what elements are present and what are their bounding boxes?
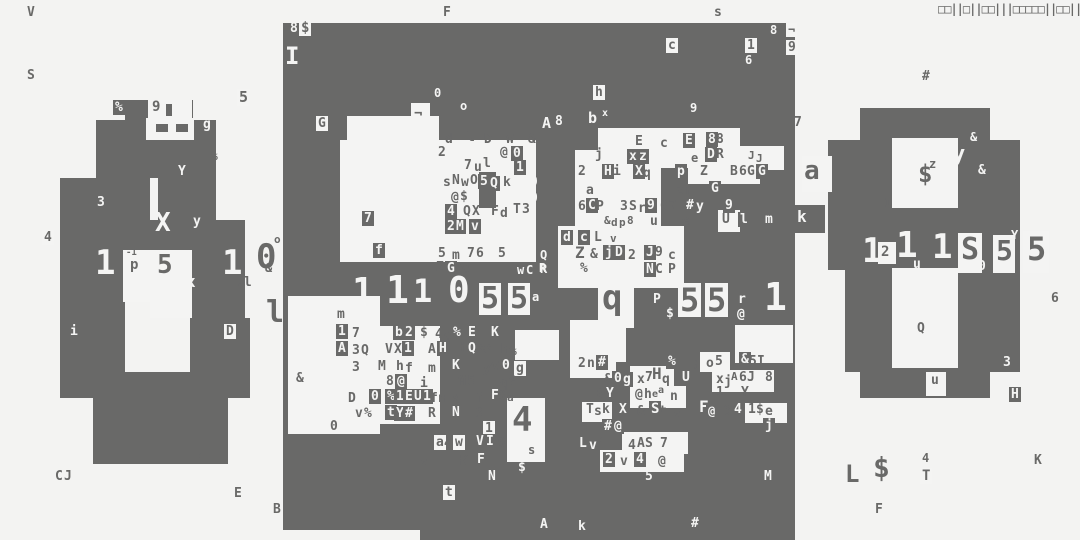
glyph-cell: V — [27, 6, 35, 19]
glyph-cell: $ — [299, 20, 311, 36]
glyph-cell: h — [644, 388, 652, 401]
glyph-cell: F — [875, 503, 883, 516]
glyph-cell: S — [961, 235, 979, 265]
glyph-cell: 7 — [669, 200, 677, 213]
glyph-cell: n — [438, 392, 446, 405]
glyph-cell: e — [682, 215, 690, 228]
glyph-cell: # — [691, 517, 699, 530]
glyph-cell: 8 — [386, 375, 394, 388]
glyph-cell: A — [731, 371, 738, 382]
glyph-cell: % — [509, 345, 517, 358]
glyph-cell: G — [316, 116, 328, 131]
glyph-cell: 6 — [739, 371, 747, 384]
glyph-cell: I — [285, 44, 299, 68]
glyph-cell: .l — [236, 276, 252, 289]
glyph-cell: Y — [1011, 229, 1018, 241]
glyph-cell: 1 — [336, 324, 348, 339]
glyph-cell: k — [602, 403, 610, 416]
glyph-cell: a — [586, 184, 594, 197]
glyph-cell: @ — [706, 404, 717, 418]
glyph-cell: z — [929, 158, 936, 170]
glyph-cell: M — [378, 360, 386, 373]
glyph-cell: 8 — [627, 215, 634, 226]
block-rect — [125, 372, 191, 398]
glyph-cell: w — [461, 176, 469, 189]
glyph-cell: i — [68, 324, 80, 339]
glyph-cell: % — [666, 354, 678, 369]
glyph-cell: 9 — [723, 198, 735, 213]
glyph-cell: E — [683, 133, 695, 148]
glyph-cell: P — [596, 200, 604, 213]
glyph-cell: e — [765, 405, 773, 418]
glyph-cell: R — [716, 148, 724, 161]
glyph-cell: G — [747, 165, 755, 178]
glyph-cell: ¬ — [786, 23, 797, 37]
glyph-cell: K — [1034, 454, 1042, 467]
glyph-cell: Q — [361, 344, 369, 357]
glyph-cell: m — [428, 362, 436, 375]
glyph-cell: 1 — [402, 341, 414, 356]
glyph-cell: 5 — [1027, 233, 1046, 265]
glyph-cell: 3 — [352, 344, 360, 357]
glyph-cell: R — [539, 262, 546, 274]
glyph-cell: 6 — [476, 247, 484, 260]
glyph-cell: $ — [756, 403, 764, 416]
glyph-cell: A — [540, 518, 548, 531]
glyph-cell: 6 — [745, 54, 752, 66]
block-rect — [190, 318, 250, 398]
glyph-cell: z — [637, 149, 649, 164]
glyph-cell: 6 — [739, 165, 747, 178]
glyph-cell: h — [396, 360, 404, 373]
glyph-cell: z — [242, 388, 250, 401]
glyph-cell: 5 — [705, 283, 728, 317]
glyph-cell: Z — [436, 261, 444, 274]
glyph-cell: % — [210, 150, 218, 163]
glyph-cell: 1 — [514, 160, 526, 175]
glyph-cell: Q — [538, 248, 549, 262]
glyph-cell: ¬ — [414, 107, 422, 121]
block-rect — [176, 124, 188, 132]
glyph-cell: 5 — [508, 283, 530, 315]
glyph-cell: @ — [500, 146, 508, 159]
glyph-cell: S — [629, 200, 637, 213]
glyph-cell: M — [458, 375, 466, 388]
glyph-cell: A — [540, 115, 553, 132]
glyph-cell: s — [452, 392, 460, 405]
glyph-cell: 0 — [369, 389, 381, 404]
glyph-cell: 5 — [580, 422, 588, 435]
glyph-cell: N — [452, 174, 460, 187]
glyph-cell: N — [486, 469, 498, 484]
glyph-cell: # — [922, 70, 930, 83]
glyph-cell: 5 — [157, 252, 173, 278]
glyph-cell: u — [929, 373, 941, 388]
glyph-cell: k — [578, 520, 586, 533]
glyph-cell: J — [747, 371, 755, 384]
glyph-cell: Z — [700, 165, 708, 178]
glyph-cell: 1 — [745, 38, 757, 53]
glyph-cell: 5 — [237, 89, 250, 106]
glyph-cell: 9 — [498, 390, 506, 403]
glyph-cell: 5 — [749, 355, 757, 368]
glyph-cell: d — [445, 133, 453, 146]
glyph-cell: 4 — [435, 328, 443, 341]
glyph-cell: @ — [735, 307, 747, 322]
glyph-cell: h — [593, 85, 605, 100]
glyph-cell: X — [155, 210, 171, 236]
glyph-cell: 3 — [620, 200, 628, 213]
glyph-cell: 4 — [445, 204, 457, 219]
glyph-cell: y — [193, 215, 201, 228]
glyph-cell: 7 — [464, 159, 472, 172]
glyph-cell: m — [763, 212, 775, 227]
glyph-cell: 9 — [498, 437, 506, 450]
glyph-cell: 6 — [1051, 292, 1059, 305]
glyph-cell: l — [467, 131, 475, 144]
glyph-cell: a — [658, 386, 664, 396]
glyph-cell: p — [130, 258, 138, 272]
glyph-cell: A — [637, 437, 645, 450]
glyph-cell: & — [976, 163, 988, 178]
glyph-cell: y — [483, 362, 491, 375]
glyph-cell: -1 — [126, 249, 137, 258]
glyph-cell: & — [970, 131, 977, 143]
glyph-cell: 3 — [1003, 356, 1011, 369]
glyph-cell: 2 — [438, 146, 446, 159]
glyph-cell: T — [586, 403, 594, 416]
glyph-cell: # — [475, 343, 483, 356]
glyph-cell: t — [659, 405, 667, 418]
glyph-cell: j — [595, 148, 603, 161]
glyph-cell: 8 — [290, 22, 298, 35]
glyph-cell: 9 — [645, 198, 657, 213]
glyph-cell: E — [635, 135, 643, 148]
glyph-cell: # — [483, 343, 491, 356]
glyph-cell: $ — [873, 454, 890, 482]
glyph-cell: O — [470, 174, 478, 187]
glyph-cell: 4 — [634, 452, 646, 467]
glyph-cell: 0 — [978, 260, 986, 273]
glyph-cell: I — [484, 434, 496, 449]
glyph-cell: F — [475, 452, 487, 467]
glyph-cell: % — [113, 100, 125, 115]
glyph-cell: l — [266, 298, 284, 328]
glyph-cell: a — [804, 158, 820, 184]
glyph-cell: s — [443, 176, 451, 189]
glyph-cell: 1 — [932, 230, 952, 264]
glyph-cell: Q — [488, 176, 500, 191]
glyph-cell: v — [420, 455, 428, 468]
glyph-cell: 2 — [628, 249, 636, 262]
glyph-cell: S — [645, 437, 653, 450]
glyph-cell: x — [637, 373, 645, 386]
glyph-cell: @ — [658, 455, 666, 468]
glyph-cell: k — [797, 209, 807, 225]
glyph-cell: H — [437, 341, 449, 356]
glyph-cell: & — [604, 215, 611, 226]
glyph-cell: d — [611, 217, 618, 228]
glyph-cell: E — [466, 325, 478, 340]
glyph-cell: i — [613, 165, 621, 178]
glyph-cell: 5 — [438, 247, 446, 260]
glyph-cell: D — [224, 324, 236, 339]
block-rect — [60, 220, 245, 250]
glyph-cell: f — [475, 392, 483, 405]
block-rect — [420, 528, 795, 540]
block-rect — [156, 124, 168, 132]
glyph-cell: 7 — [467, 247, 475, 260]
glyph-cell: r — [736, 292, 748, 307]
glyph-cell: 4 — [512, 403, 532, 437]
glyph-cell: 8 — [765, 371, 773, 384]
glyph-cell: H — [652, 366, 662, 382]
glyph-cell: $ — [666, 307, 674, 320]
glyph-cell: X — [394, 343, 402, 356]
glyph-cell: 8 — [770, 24, 777, 36]
glyph-cell: 5 — [479, 283, 501, 315]
glyph-cell: 7 — [794, 116, 802, 129]
glyph-cell: 1 — [413, 275, 432, 307]
glyph-cell: Y — [538, 333, 549, 351]
glyph-cell: 4 — [628, 439, 636, 452]
glyph-cell: # — [596, 355, 608, 370]
glyph-cell: 2 — [603, 452, 615, 467]
glyph-cell: P — [596, 437, 604, 450]
glyph-cell: G — [756, 164, 768, 179]
glyph-cell: v — [673, 407, 681, 420]
glyph-cell: @ — [395, 374, 407, 389]
glyph-cell: Y — [604, 386, 616, 401]
glyph-cell: M — [454, 219, 466, 234]
glitch-canvas: VSFs#5%9g%Y34Xy1p-15x1.l0o&iDlz&8$I0o¬Gh… — [0, 0, 1080, 540]
glyph-cell: H — [1009, 387, 1021, 402]
glyph-cell: l — [738, 212, 750, 227]
glyph-cell: & — [296, 372, 304, 385]
glyph-cell: & — [528, 133, 536, 146]
glyph-cell: k — [503, 176, 511, 189]
glyph-cell: 3 — [522, 203, 530, 216]
glyph-cell: Y — [178, 165, 186, 178]
glyph-cell: Q — [463, 205, 471, 218]
glyph-cell: U — [680, 370, 692, 385]
glyph-cell: i — [458, 343, 466, 356]
glyph-cell: J — [756, 153, 763, 164]
glyph-cell: $ — [460, 190, 468, 203]
glyph-cell: J — [748, 150, 755, 161]
glyph-cell: x — [186, 274, 196, 290]
glyph-cell: 1 — [748, 403, 756, 416]
glyph-cell: @ — [612, 419, 624, 434]
glyph-cell: K — [489, 325, 501, 340]
glyph-cell: Q — [917, 322, 925, 335]
glyph-cell: b — [588, 111, 597, 126]
block-rect — [892, 268, 958, 368]
glyph-cell: h — [500, 343, 508, 356]
glyph-cell: & — [590, 248, 598, 261]
glyph-cell: v — [610, 233, 617, 244]
glyph-cell: 1 — [716, 386, 724, 399]
glyph-cell: X — [472, 205, 480, 218]
glyph-cell: V — [385, 343, 393, 356]
glyph-cell: n — [587, 357, 595, 370]
glyph-cell: 4 — [444, 437, 452, 450]
glyph-cell: s — [594, 405, 602, 418]
glyph-cell: 5 — [498, 247, 506, 260]
glyph-cell: P — [668, 263, 676, 276]
glyph-cell: & — [637, 405, 645, 418]
glyph-cell: m — [337, 308, 345, 321]
glyph-cell: C — [55, 470, 63, 483]
glyph-cell: % — [578, 261, 590, 276]
glyph-cell: 6 — [660, 200, 668, 213]
glyph-cell: z — [676, 184, 684, 197]
glyph-cell: $ — [420, 326, 428, 339]
glyph-cell: F — [491, 205, 499, 218]
glyph-cell: A — [336, 341, 348, 356]
glyph-cell: g — [203, 118, 211, 131]
glyph-cell: M — [764, 470, 772, 483]
glyph-cell: # — [403, 406, 415, 421]
glyph-cell: n — [670, 390, 678, 403]
glyph-cell: A — [428, 343, 436, 356]
glyph-cell: 3 — [97, 196, 105, 209]
glyph-cell: w — [1003, 264, 1010, 275]
glyph-cell: v — [355, 407, 363, 420]
glyph-cell: w — [453, 435, 465, 450]
glyph-cell: 7 — [362, 211, 374, 226]
glyph-cell: 8 — [723, 405, 731, 418]
glyph-cell: $ — [644, 228, 652, 242]
glyph-cell: K — [460, 455, 468, 468]
glyph-cell: d — [561, 230, 573, 245]
glyph-cell: C — [655, 263, 663, 276]
glyph-cell: 4 — [42, 230, 54, 245]
glyph-cell: 0 — [511, 146, 523, 161]
glyph-cell: U — [722, 213, 730, 226]
glyph-cell: p — [675, 164, 687, 179]
block-rect — [515, 330, 559, 360]
glyph-cell: l — [483, 157, 491, 170]
glyph-cell: 9 — [530, 176, 538, 189]
glyph-cell: y — [952, 144, 965, 166]
glyph-cell: 5 — [645, 470, 653, 483]
glyph-cell: D — [348, 392, 356, 405]
glyph-cell: y — [694, 199, 706, 214]
glyph-cell: 9 — [152, 100, 160, 114]
glyph-cell: & — [604, 373, 612, 386]
glyph-cell: 0 — [530, 192, 538, 205]
glyph-cell: 1 — [352, 274, 374, 310]
glyph-cell: v — [620, 455, 628, 468]
glyph-cell: 7 — [660, 437, 668, 450]
glyph-cell: D — [484, 133, 492, 146]
glyph-cell: d — [500, 207, 508, 220]
glyph-cell: s — [528, 444, 535, 456]
glyph-cell: 1 — [386, 271, 409, 309]
glyph-cell: 7 — [352, 327, 360, 340]
glyph-cell: 2 — [578, 165, 586, 178]
glyph-cell: P — [651, 292, 663, 307]
glyph-cell: a — [532, 291, 539, 303]
glyph-cell: L — [527, 161, 535, 174]
glyph-cell: I — [884, 197, 891, 209]
glyph-cell: 0 — [509, 375, 517, 388]
glyph-cell: 9 — [690, 102, 697, 114]
glyph-cell: g — [621, 372, 633, 387]
glyph-cell: 3 — [352, 361, 360, 374]
glyph-cell: q — [602, 281, 622, 315]
glyph-cell: t — [443, 485, 455, 500]
glyph-cell: F — [443, 6, 451, 19]
glyph-cell: q — [643, 167, 651, 180]
glyph-cell: J — [64, 470, 72, 483]
glyph-cell: P — [195, 453, 203, 466]
glyph-cell: B — [595, 388, 603, 401]
glyph-cell: Z — [575, 245, 585, 261]
glyph-cell: r — [685, 184, 693, 197]
block-rect — [93, 396, 228, 464]
glyph-cell: X — [617, 402, 629, 417]
glyph-cell: x — [602, 109, 608, 119]
glyph-cell: E — [234, 487, 242, 500]
glyph-cell: T — [513, 203, 521, 216]
glyph-cell: ; — [692, 357, 700, 370]
glyph-cell: & — [265, 262, 272, 274]
glyph-cell: u — [913, 258, 921, 271]
glyph-cell: 2 — [881, 245, 889, 259]
glyph-cell: B — [730, 165, 738, 178]
glyph-cell: R — [428, 407, 436, 420]
glyph-cell: % — [364, 407, 372, 420]
glyph-cell: 8 — [555, 115, 563, 128]
glyph-cell: 1 — [764, 278, 787, 316]
glyph-cell: 9 — [655, 246, 663, 259]
glyph-cell: 1 — [95, 246, 115, 280]
glyph-cell: e — [689, 151, 700, 165]
glyph-cell: f — [373, 243, 385, 258]
glyph-cell: T — [920, 468, 932, 484]
glyph-cell: 5 — [678, 283, 701, 317]
glyph-cell: S — [27, 69, 35, 82]
glyph-cell: c — [668, 249, 676, 262]
glyph-cell: C — [526, 264, 533, 276]
glyph-cell: % — [451, 325, 463, 340]
glyph-cell: p — [619, 217, 626, 228]
glyph-cell: W — [491, 360, 499, 373]
glyph-cell: s — [714, 6, 722, 19]
glyph-cell: Y — [741, 386, 749, 399]
glyph-cell: o — [274, 234, 281, 245]
glyph-cell: B — [273, 503, 281, 516]
glyph-cell: D — [613, 245, 625, 260]
glyph-cell: 4 — [922, 452, 929, 464]
barcode-pattern: □□||□||□□|||□□□□□||□□||□□|||□□□ — [938, 3, 1080, 15]
glyph-cell: o — [460, 100, 467, 112]
glyph-cell: @ — [635, 388, 643, 401]
glyph-cell: 2 — [403, 325, 415, 340]
block-rect — [166, 104, 172, 116]
glyph-cell: 2 — [578, 357, 586, 370]
glyph-cell: f — [430, 392, 438, 405]
glyph-cell: 0 — [500, 358, 512, 373]
glyph-cell: 5 — [467, 375, 475, 388]
glyph-cell: 0 — [330, 420, 338, 433]
glyph-cell: j — [763, 418, 775, 433]
glyph-cell: 8 — [716, 133, 724, 146]
glyph-cell: 1 — [862, 234, 882, 268]
glyph-cell: N — [450, 405, 462, 420]
